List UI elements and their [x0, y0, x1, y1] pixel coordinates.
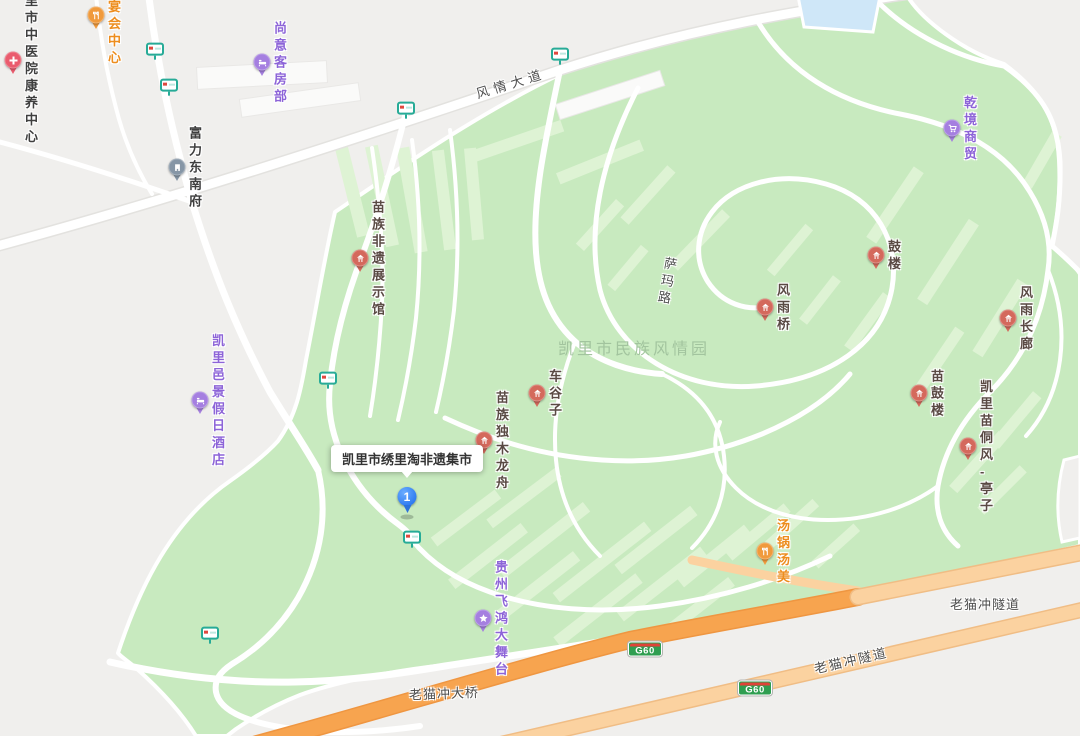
scenic-icon: [1003, 313, 1013, 323]
bus-stop-sign: [201, 627, 219, 640]
scenic-icon: [479, 435, 489, 445]
pin-tail: [948, 135, 956, 146]
bus-stop-icon[interactable]: [146, 43, 164, 60]
food-icon: [91, 10, 101, 20]
scenic-icon: [963, 441, 973, 451]
lodging-icon: [257, 57, 267, 67]
stage-icon: [478, 613, 488, 623]
bus-stop-sign: [319, 372, 337, 385]
poi-label[interactable]: 鼓楼: [888, 238, 901, 272]
bus-stop-icon[interactable]: [403, 531, 421, 548]
pin-tail: [761, 558, 769, 569]
bus-stop-pole: [559, 61, 561, 65]
estate-pin-icon[interactable]: [169, 159, 186, 176]
pin-tail: [964, 453, 972, 464]
poi-label[interactable]: 嘉悦宴会中心: [108, 0, 121, 66]
badge-text: G60: [739, 685, 771, 695]
stage-pin-icon[interactable]: [475, 610, 492, 627]
bus-stop-pole: [411, 544, 413, 548]
poi-label[interactable]: 凯里邑景假日酒店: [212, 332, 225, 468]
poi-label[interactable]: 风雨长廊: [1020, 284, 1033, 352]
pin-tail: [92, 22, 100, 33]
poi-label[interactable]: 贵州飞鸿大舞台: [495, 559, 508, 678]
bus-stop-icon[interactable]: [551, 48, 569, 65]
poi-label[interactable]: 汤锅汤美: [777, 517, 790, 585]
lodging-pin-icon[interactable]: [192, 392, 209, 409]
bus-stop-sign: [146, 43, 164, 56]
food-icon: [760, 546, 770, 556]
pin-tail: [761, 314, 769, 325]
scenic-icon: [355, 253, 365, 263]
bus-stop-sign: [397, 102, 415, 115]
selected-marker-tail: [403, 505, 411, 517]
scenic-icon: [871, 250, 881, 260]
medical-pin-icon[interactable]: [5, 52, 22, 69]
poi-label[interactable]: 凯里市中医院 康养中心: [25, 0, 38, 145]
water-area: [798, 0, 880, 32]
estate-icon: [172, 162, 182, 172]
poi-label[interactable]: 苗族非遗展示馆: [372, 199, 385, 318]
food-pin-icon[interactable]: [757, 543, 774, 560]
pin-tail: [196, 407, 204, 418]
scenic-icon: [760, 302, 770, 312]
poi-label[interactable]: 风雨桥: [777, 282, 790, 333]
bus-stop-sign: [551, 48, 569, 61]
scenic-pin-icon[interactable]: [757, 299, 774, 316]
shopping-pin-icon[interactable]: [944, 120, 961, 137]
poi-label[interactable]: 苗鼓楼: [931, 368, 944, 419]
bus-stop-sign: [403, 531, 421, 544]
lodging-pin-icon[interactable]: [254, 54, 271, 71]
scenic-pin-icon[interactable]: [529, 385, 546, 402]
scenic-pin-icon[interactable]: [352, 250, 369, 267]
right-edge-area: [1058, 456, 1080, 542]
bus-stop-icon[interactable]: [160, 79, 178, 96]
map-terrain: [0, 0, 1080, 736]
lodging-icon: [195, 395, 205, 405]
poi-label[interactable]: 乾境商贸: [964, 94, 977, 162]
tooltip-arrow: [401, 471, 413, 478]
pin-tail: [356, 265, 364, 276]
bus-stop-icon[interactable]: [397, 102, 415, 119]
scenic-icon: [914, 388, 924, 398]
tooltip-text[interactable]: 凯里市绣里淘非遗集市: [331, 445, 483, 472]
scenic-pin-icon[interactable]: [868, 247, 885, 264]
badge-text: G60: [629, 646, 661, 656]
scenic-icon: [532, 388, 542, 398]
pin-tail: [533, 400, 541, 411]
park-name-watermark: 凯里市民族风情园: [558, 335, 710, 359]
pin-tail: [915, 400, 923, 411]
scenic-pin-icon[interactable]: [960, 438, 977, 455]
poi-label[interactable]: 苗族独木龙舟: [496, 389, 509, 491]
scenic-pin-icon[interactable]: [911, 385, 928, 402]
pin-tail: [258, 69, 266, 80]
pin-tail: [1004, 325, 1012, 336]
bus-stop-icon[interactable]: [201, 627, 219, 644]
pin-tail: [173, 174, 181, 185]
poi-label[interactable]: 车谷子: [549, 368, 562, 419]
pin-tail: [479, 625, 487, 636]
food-pin-icon[interactable]: [88, 7, 105, 24]
selected-marker-head[interactable]: 1: [398, 487, 417, 506]
g60-highway-badge: G60: [628, 642, 662, 657]
bus-stop-pole: [405, 115, 407, 119]
bus-stop-pole: [154, 56, 156, 60]
pin-tail: [9, 67, 17, 78]
selected-marker-number: 1: [404, 490, 411, 504]
scenic-pin-icon[interactable]: [1000, 310, 1017, 327]
poi-label[interactable]: 富力东南府: [189, 125, 202, 210]
selected-poi-tooltip[interactable]: 凯里市绣里淘非遗集市: [331, 445, 483, 478]
shopping-icon: [947, 123, 957, 133]
bus-stop-pole: [168, 92, 170, 96]
g60-highway-badge: G60: [738, 681, 772, 696]
road-label-laomaochong-tunnel-east: 老猫冲隧道: [950, 598, 1020, 612]
pin-tail: [872, 262, 880, 273]
bus-stop-pole: [209, 640, 211, 644]
bus-stop-sign: [160, 79, 178, 92]
road-label-laomaochong-bridge: 老猫冲大桥: [409, 686, 479, 702]
poi-label[interactable]: 凯里苗侗风 -亭子: [980, 378, 993, 514]
selected-marker[interactable]: 1: [398, 487, 417, 514]
poi-label[interactable]: 尚意客房部: [274, 20, 287, 105]
medical-icon: [8, 55, 18, 65]
bus-stop-pole: [327, 385, 329, 389]
map-canvas[interactable]: 凯里市民族风情园 嘉悦宴会中心凯里市中医院 康养中心尚意客房部富力东南府乾境商贸…: [0, 0, 1080, 736]
bus-stop-icon[interactable]: [319, 372, 337, 389]
